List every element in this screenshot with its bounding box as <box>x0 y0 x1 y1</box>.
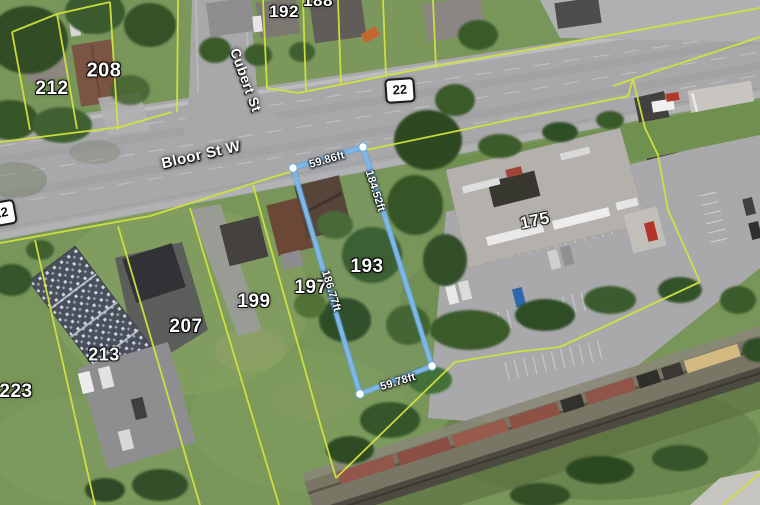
parcel-corner-handle[interactable] <box>359 143 367 151</box>
parcel-corner-handle[interactable] <box>356 390 364 398</box>
lot-number-223: 223 <box>0 381 33 403</box>
lot-number-199: 199 <box>237 291 270 313</box>
lot-number-208: 208 <box>87 60 122 83</box>
parcel-corner-handle[interactable] <box>289 164 297 172</box>
lot-number-188: 188 <box>303 0 333 11</box>
route-badge-22: 22 <box>384 77 416 104</box>
lot-number-192: 192 <box>269 2 299 22</box>
lot-number-213: 213 <box>88 345 120 366</box>
lot-number-207: 207 <box>169 316 202 338</box>
lot-number-212: 212 <box>35 78 68 100</box>
parcel-corner-handle[interactable] <box>428 362 436 370</box>
lot-number-193: 193 <box>350 256 383 278</box>
aerial-parcel-map[interactable]: Bloor St W Cubert St 22 22 208 212 192 1… <box>0 0 760 505</box>
